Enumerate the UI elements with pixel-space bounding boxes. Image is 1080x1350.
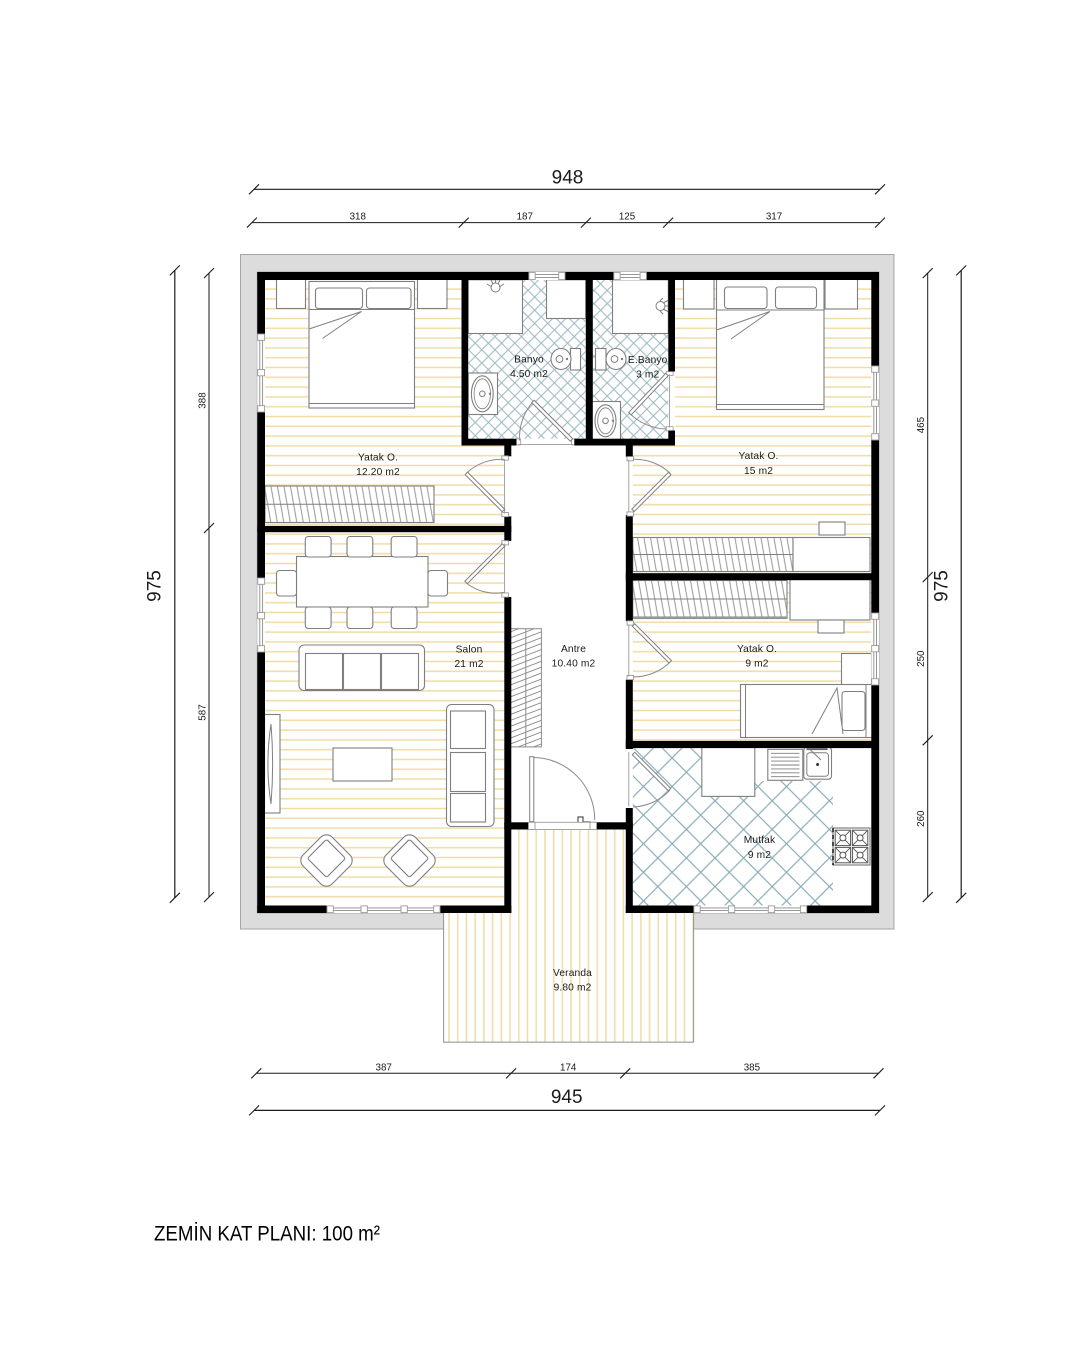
svg-text:975: 975 — [932, 570, 953, 602]
svg-text:465: 465 — [916, 416, 927, 433]
svg-text:975: 975 — [145, 570, 166, 602]
svg-text:260: 260 — [916, 810, 927, 827]
svg-text:250: 250 — [916, 650, 927, 667]
svg-text:ZEMİN KAT PLANI: 100 m²: ZEMİN KAT PLANI: 100 m² — [154, 1223, 380, 1246]
svg-text:387: 387 — [376, 1062, 392, 1073]
svg-text:945: 945 — [551, 1087, 583, 1108]
svg-text:385: 385 — [744, 1062, 761, 1073]
svg-text:174: 174 — [560, 1062, 577, 1073]
svg-text:587: 587 — [198, 704, 209, 720]
svg-text:125: 125 — [619, 212, 636, 223]
svg-text:388: 388 — [198, 392, 209, 409]
svg-text:318: 318 — [350, 212, 367, 223]
svg-text:948: 948 — [552, 167, 584, 188]
svg-text:317: 317 — [766, 212, 782, 223]
svg-text:187: 187 — [517, 212, 533, 223]
